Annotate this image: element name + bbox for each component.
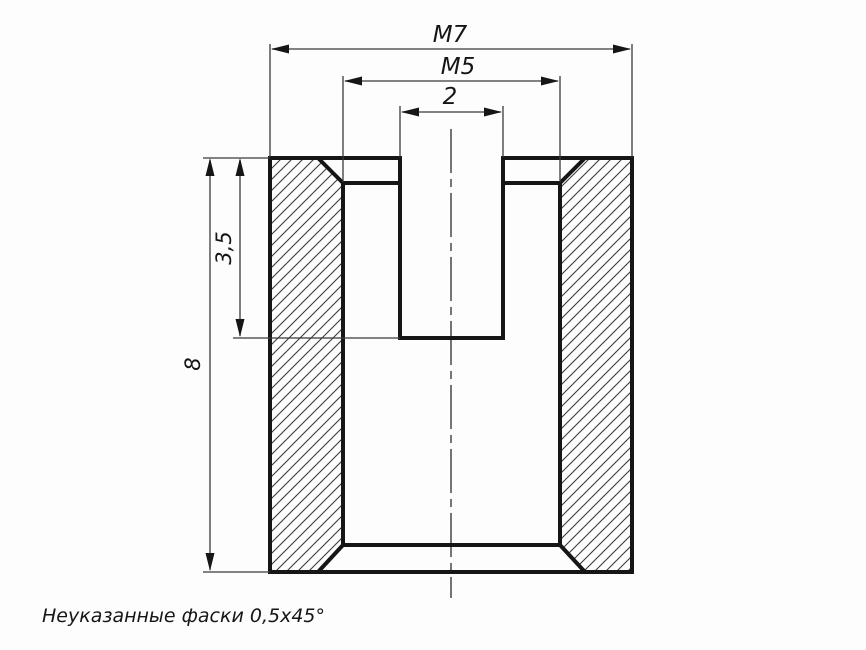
dim-height: 8 — [181, 158, 215, 571]
dim-m7: M7 — [271, 22, 631, 54]
dim-hole-depth: 3,5 — [212, 158, 245, 337]
dim-hole-width-label: 2 — [443, 84, 458, 110]
dim-m5-arrow-left — [344, 77, 362, 86]
dim-hole-depth-label: 3,5 — [212, 231, 236, 264]
technical-drawing: M7 M5 2 3,5 8 — [0, 0, 866, 650]
drawing-svg: M7 M5 2 3,5 8 — [0, 0, 866, 650]
dim-m7-arrow-left — [271, 45, 289, 54]
dim-hole-width-arrow-right — [484, 108, 502, 117]
dim-hole-width: 2 — [401, 84, 502, 117]
dim-m5: M5 — [344, 54, 559, 86]
dim-m7-label: M7 — [433, 22, 468, 48]
dim-hole-depth-arrow-top — [236, 158, 245, 176]
dim-hole-depth-arrow-bottom — [236, 319, 245, 337]
dim-height-label: 8 — [181, 357, 205, 370]
hatch-right-wall — [560, 158, 632, 572]
dim-height-arrow-top — [206, 158, 215, 176]
dim-m7-arrow-right — [613, 45, 631, 54]
hatch-left-wall — [270, 158, 343, 572]
dim-m5-arrow-right — [541, 77, 559, 86]
chamfer-note: Неуказанные фаски 0,5x45° — [42, 605, 325, 627]
dim-m5-label: M5 — [441, 54, 475, 80]
dim-hole-width-arrow-left — [401, 108, 419, 117]
dim-height-arrow-bottom — [206, 553, 215, 571]
